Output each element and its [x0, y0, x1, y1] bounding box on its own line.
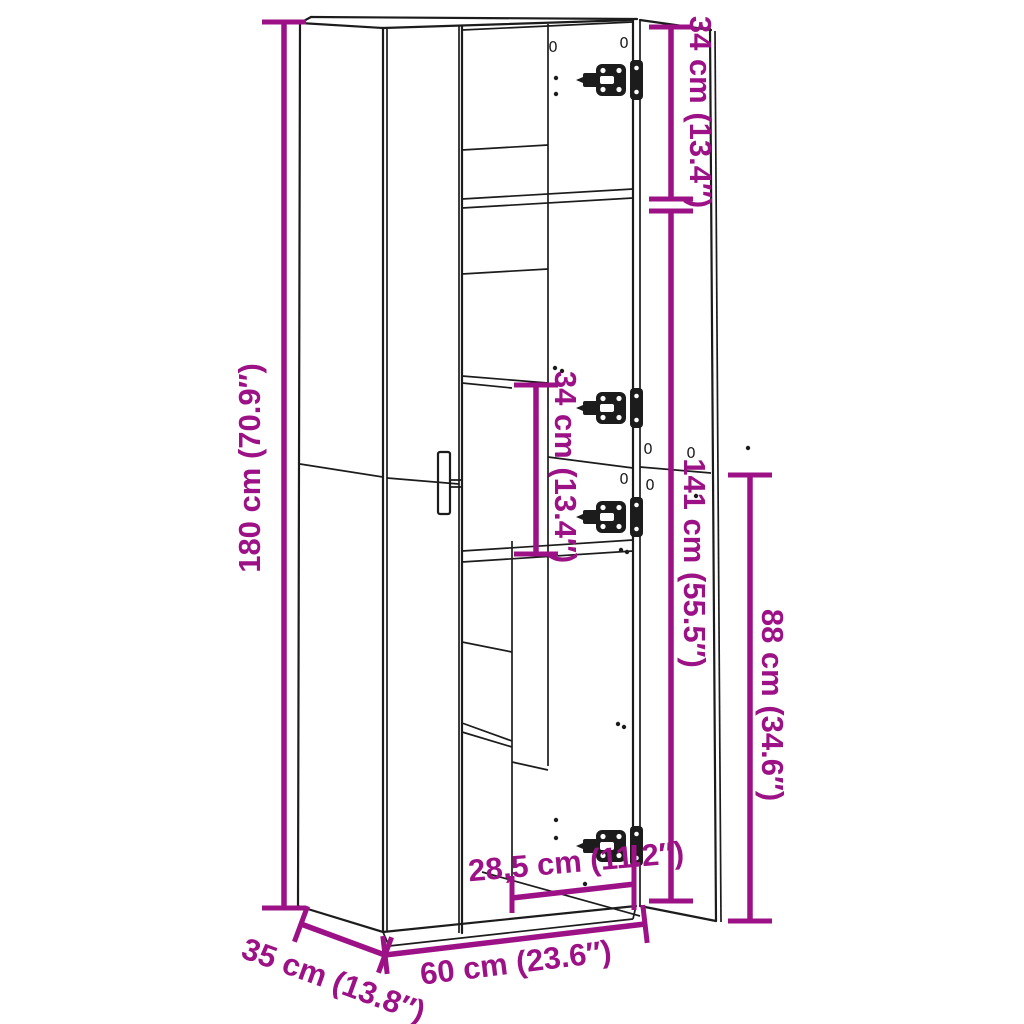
- dimension-label-top-section: 34 cm (13.4″): [683, 16, 718, 208]
- dimension-label-door-height: 141 cm (55.5″): [677, 458, 712, 668]
- hinge-icon: [576, 388, 643, 428]
- drill-hole-marker: 0: [548, 38, 558, 56]
- hinge-icon: [576, 497, 643, 537]
- dimension-annotations: 180 cm (70.9″) 34 cm (13.4″) 141 cm (55.…: [232, 16, 790, 1024]
- dimension-label-overall-height: 180 cm (70.9″): [232, 363, 267, 573]
- left-side-panel: [298, 23, 383, 932]
- dimension-door-height: 141 cm (55.5″): [649, 211, 712, 901]
- dimension-label-interior-width: 28,5 cm (11.2″): [467, 835, 686, 889]
- hinge-icon: [576, 60, 643, 100]
- drill-hole-marker: 0: [643, 440, 653, 458]
- dimension-interior-shelf: 34 cm (13.4″): [514, 371, 583, 563]
- dimension-top-section: 34 cm (13.4″): [649, 16, 718, 208]
- dimension-label-lower-section: 88 cm (34.6″): [755, 609, 790, 801]
- dimension-label-interior-shelf: 34 cm (13.4″): [548, 371, 583, 563]
- dimension-overall-height: 180 cm (70.9″): [232, 22, 306, 908]
- drill-hole-marker: 0: [645, 476, 655, 494]
- drill-hole-marker: 0: [619, 470, 629, 488]
- cabinet-diagram-svg: 0 0 0 0 0 0 180 cm (70.9″): [0, 0, 1024, 1024]
- closed-left-door: [383, 26, 462, 933]
- dimension-lower-section: 88 cm (34.6″): [728, 475, 790, 921]
- drill-hole-marker: 0: [619, 34, 629, 52]
- dimension-overall-depth: 35 cm (13.8″): [237, 906, 430, 1024]
- furniture-dimension-diagram: 0 0 0 0 0 0 180 cm (70.9″): [0, 0, 1024, 1024]
- dimension-label-overall-width: 60 cm (23.6″): [418, 933, 613, 991]
